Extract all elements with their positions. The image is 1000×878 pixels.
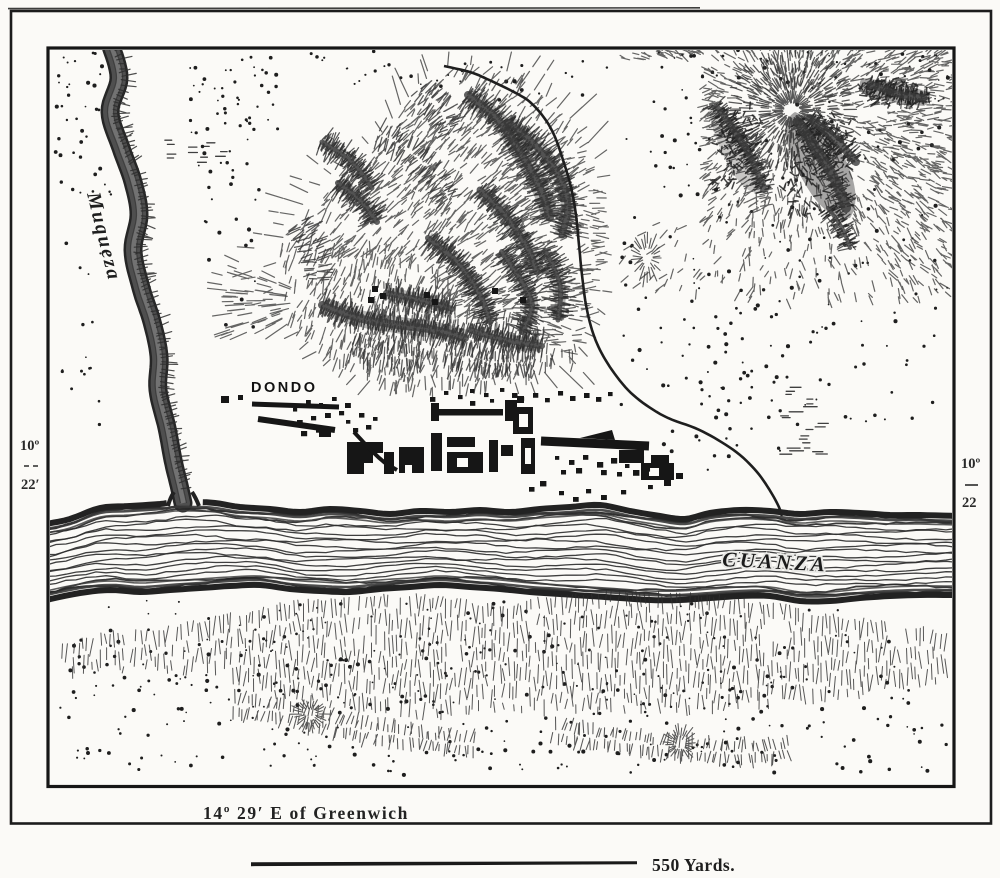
svg-text:DONDO: DONDO bbox=[251, 380, 317, 396]
svg-text:22: 22 bbox=[962, 495, 977, 511]
svg-text:22′: 22′ bbox=[21, 477, 40, 493]
svg-text:10º: 10º bbox=[961, 456, 981, 472]
svg-text:550 Yards.: 550 Yards. bbox=[652, 855, 735, 875]
svg-text:10º: 10º bbox=[20, 438, 40, 454]
svg-text:14º 29′ E of Greenwich: 14º 29′ E of Greenwich bbox=[203, 803, 409, 823]
